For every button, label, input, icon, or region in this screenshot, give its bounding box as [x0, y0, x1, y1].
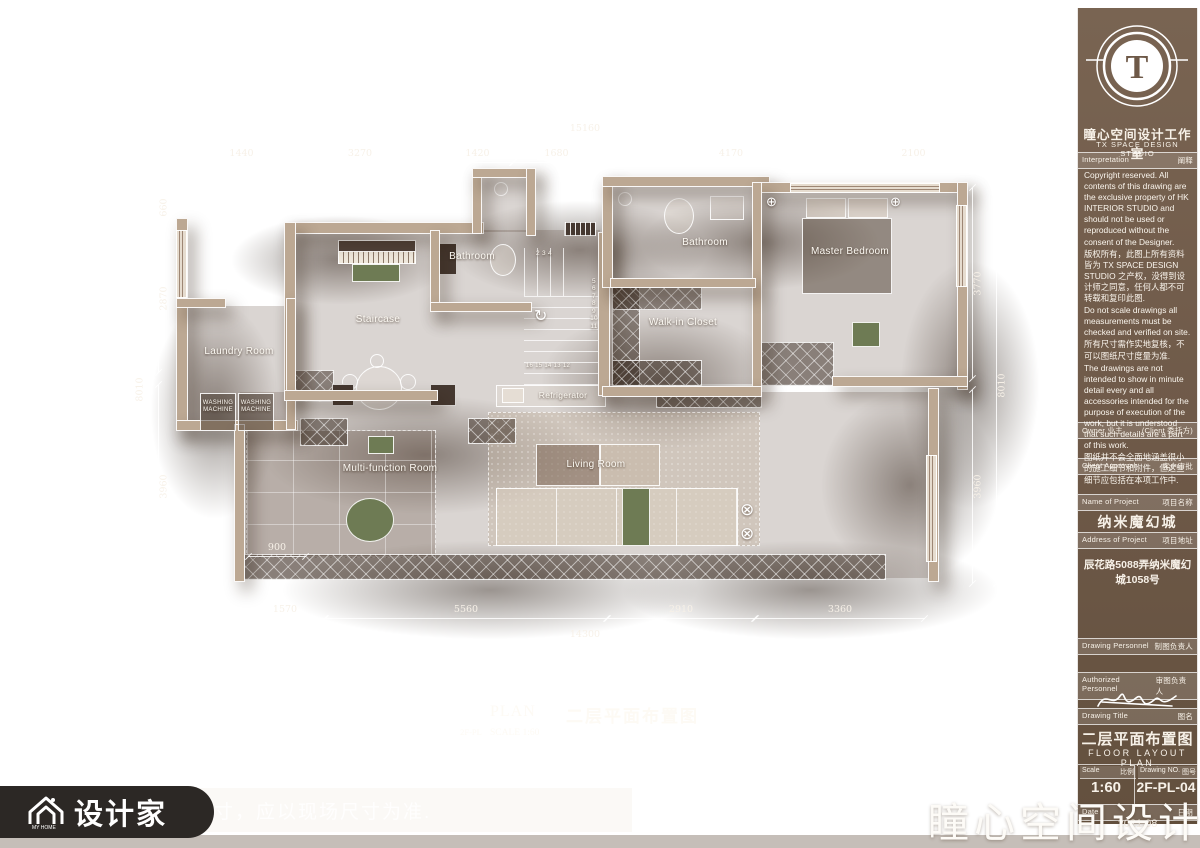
room-label-living: Living Room — [546, 459, 646, 471]
dim-bottom-seg: 3360 — [755, 605, 925, 619]
caption-plan-label: PLAN — [490, 703, 536, 721]
header-cn: 图号 — [1182, 767, 1196, 777]
header-cn: 阐释 — [1178, 155, 1193, 166]
lamp-icon: ⊕ — [766, 194, 777, 210]
copyright-paragraph: Do not scale drawings all measurements m… — [1084, 305, 1191, 338]
header-cn: 项目地址 — [1162, 535, 1193, 546]
dim-bottom-seg: 1570 — [245, 605, 325, 619]
dim-top-total: 15160 — [205, 124, 965, 138]
my-home-logo-icon: MY HOME — [26, 794, 66, 830]
header-cn: 制图负责人 — [1155, 641, 1194, 652]
bedroom-bench — [852, 322, 880, 347]
dim-top-seg: 1680 — [513, 149, 600, 163]
stair-numbers-bottom: 16 15 14 13 12 — [518, 363, 578, 370]
wardrobe-hatch — [612, 286, 702, 310]
header-en: Name of Project — [1082, 497, 1139, 508]
pillow — [848, 198, 888, 218]
dim-top-seg: 4170 — [600, 149, 862, 163]
header-cn: 项目名称 — [1162, 497, 1193, 508]
side-table-icon: ⊗ — [740, 524, 754, 544]
stool — [368, 436, 394, 454]
washing-machine: WASHING MACHINE — [238, 393, 274, 431]
header-en: Owner 业主 — [1082, 425, 1123, 436]
sofa — [496, 488, 738, 546]
drawing-title-cn: 二层平面布置图 — [1078, 728, 1197, 749]
toilet-icon — [664, 198, 694, 234]
section-header-owner: Owner 业主 (Client 委托方) — [1078, 422, 1197, 439]
section-header-client-approval: Client Approval 客户审批 — [1078, 458, 1197, 475]
wall — [602, 176, 770, 187]
drawing-sheet: ↻ 2 3 4 5 6 7 8 9 10 11 16 15 14 13 12 W… — [0, 0, 1200, 848]
header-en: Address of Project — [1082, 535, 1147, 546]
copyright-paragraph: 所有尺寸需作实地复核，不可以图纸尺寸度量为准. — [1084, 339, 1191, 361]
room-label-refrigerator: Refrigerator — [528, 390, 598, 400]
stair-numbers-top: 2 3 4 — [524, 250, 564, 258]
cabinet-hatch — [300, 418, 348, 446]
wall — [526, 168, 536, 236]
room-label-master-bedroom: Master Bedroom — [798, 246, 902, 258]
pillow — [806, 198, 846, 218]
wall — [602, 176, 613, 288]
cabinet-hatch — [468, 418, 516, 444]
wall — [284, 390, 438, 401]
dim-top-seg: 2100 — [862, 149, 965, 163]
room-label-bathroom1: Bathroom — [432, 251, 512, 263]
wall — [430, 230, 440, 312]
header-en: Client Approval — [1082, 461, 1135, 472]
wall — [602, 386, 762, 397]
balcony-rail-hatch — [242, 554, 886, 580]
dining-chair — [370, 354, 384, 368]
copyright-text: Copyright reserved. All contents of this… — [1084, 170, 1191, 487]
dim-inner-900: 900 — [248, 543, 306, 557]
studio-logo-icon: T — [1078, 14, 1197, 122]
stair-direction-icon: ↻ — [534, 306, 547, 326]
my-home-text: MY HOME — [32, 825, 56, 830]
header-cn: 图名 — [1178, 711, 1193, 722]
dim-left-seg: 2870 — [158, 224, 172, 372]
window — [790, 183, 940, 193]
project-name-value: 纳米魔幻城 — [1078, 512, 1197, 532]
header-en: Drawing Personnel — [1082, 641, 1149, 652]
header-cn: (Client 委托方) — [1142, 425, 1193, 436]
section-header-drawing-personnel: Drawing Personnel 制图负责人 — [1078, 638, 1197, 655]
copyright-paragraph: Copyright reserved. All contents of this… — [1084, 170, 1191, 248]
header-cn: 比例 — [1120, 767, 1134, 777]
scale-header: Scale 比例 — [1080, 766, 1136, 779]
wall — [430, 302, 532, 312]
side-table-icon: ⊗ — [740, 500, 754, 520]
wall — [286, 222, 484, 234]
window — [926, 455, 937, 562]
studio-watermark-text: 瞳心空间设计 — [928, 789, 1200, 848]
header-en: Drawing NO. — [1140, 767, 1180, 777]
wall — [234, 424, 245, 582]
title-block: T 瞳心空间设计工作室 TX SPACE DESIGN STUDIO Inter… — [1077, 8, 1198, 824]
dim-top-seg: 3270 — [278, 149, 442, 163]
ottoman — [346, 498, 394, 542]
dim-right-seg: 3960 — [972, 390, 986, 583]
piano-keys — [338, 251, 416, 264]
copyright-paragraph: 版权所有，此图上所有资料皆为 TX SPACE DESIGN STUDIO 之产… — [1084, 249, 1191, 304]
project-address-value: 辰花路5088弄纳米魔幻城1058号 — [1082, 558, 1193, 587]
dining-table — [356, 366, 402, 410]
section-header-interpretation: Interpretation 阐释 — [1078, 152, 1197, 169]
drawing-no-header: Drawing NO. 图号 — [1138, 766, 1198, 779]
dim-top-seg: 1420 — [442, 149, 513, 163]
disclaimer-text: 寸，应以现场尺寸为准. — [214, 797, 431, 824]
tatami-floor — [246, 430, 436, 558]
stair-numbers-right: 5 6 7 8 9 10 11 — [588, 278, 600, 330]
wall — [176, 298, 226, 308]
wall — [286, 298, 296, 430]
header-en: Drawing Title — [1082, 711, 1128, 722]
room-label-multifunction: Multi-function Room — [328, 463, 452, 475]
threshold — [564, 222, 596, 236]
dim-left-seg: 660 — [158, 190, 172, 224]
caption-scale: SCALE 1:60 — [490, 728, 539, 738]
wardrobe-hatch — [612, 360, 702, 386]
shower-icon — [494, 182, 508, 196]
section-header-project-name: Name of Project 项目名称 — [1078, 494, 1197, 511]
room-label-walkin-closet: Walk-in Closet — [628, 317, 738, 329]
room-label-bathroom2: Bathroom — [660, 237, 750, 249]
washing-machine: WASHING MACHINE — [200, 393, 236, 431]
header-en: Interpretation — [1082, 155, 1129, 166]
room-label-laundry: Laundry Room — [196, 346, 282, 358]
window — [176, 230, 187, 298]
dim-right-total: 8010 — [996, 188, 1010, 583]
refrigerator-icon — [502, 388, 524, 403]
window — [956, 205, 967, 287]
section-header-address: Address of Project 项目地址 — [1078, 532, 1197, 549]
dim-top-seg: 1440 — [205, 149, 278, 163]
svg-text:T: T — [1126, 49, 1149, 86]
dim-bottom-seg: 5560 — [325, 605, 607, 619]
dim-bottom-total: 14300 — [245, 630, 925, 644]
wall — [610, 278, 756, 288]
sofa-green-cushion — [622, 488, 650, 546]
piano-bench — [352, 264, 400, 282]
cabinet-hatch — [752, 342, 834, 386]
floor-plan: ↻ 2 3 4 5 6 7 8 9 10 11 16 15 14 13 12 W… — [0, 0, 1080, 790]
brand-badge-label: 设计家 — [74, 791, 167, 833]
caption-title-cn: 二层平面布置图 — [566, 702, 699, 727]
shower-icon — [618, 192, 632, 206]
dining-chair — [400, 374, 416, 390]
room-label-staircase: Staircase — [328, 314, 428, 326]
header-cn: 客户审批 — [1162, 461, 1193, 472]
wall — [832, 376, 968, 387]
sink-icon — [710, 196, 744, 220]
dim-right-seg: 3770 — [972, 188, 986, 378]
lamp-icon: ⊕ — [890, 194, 901, 210]
dim-left-seg: 3960 — [158, 385, 172, 588]
dim-left-total: 8010 — [134, 190, 148, 588]
caption-tag: 2F-PL — [452, 718, 490, 746]
dim-bottom-seg: 2910 — [607, 605, 755, 619]
header-en: Scale — [1082, 767, 1100, 777]
brand-badge: MY HOME 设计家 — [0, 786, 214, 838]
section-header-drawing-title: Drawing Title 图名 — [1078, 708, 1197, 725]
